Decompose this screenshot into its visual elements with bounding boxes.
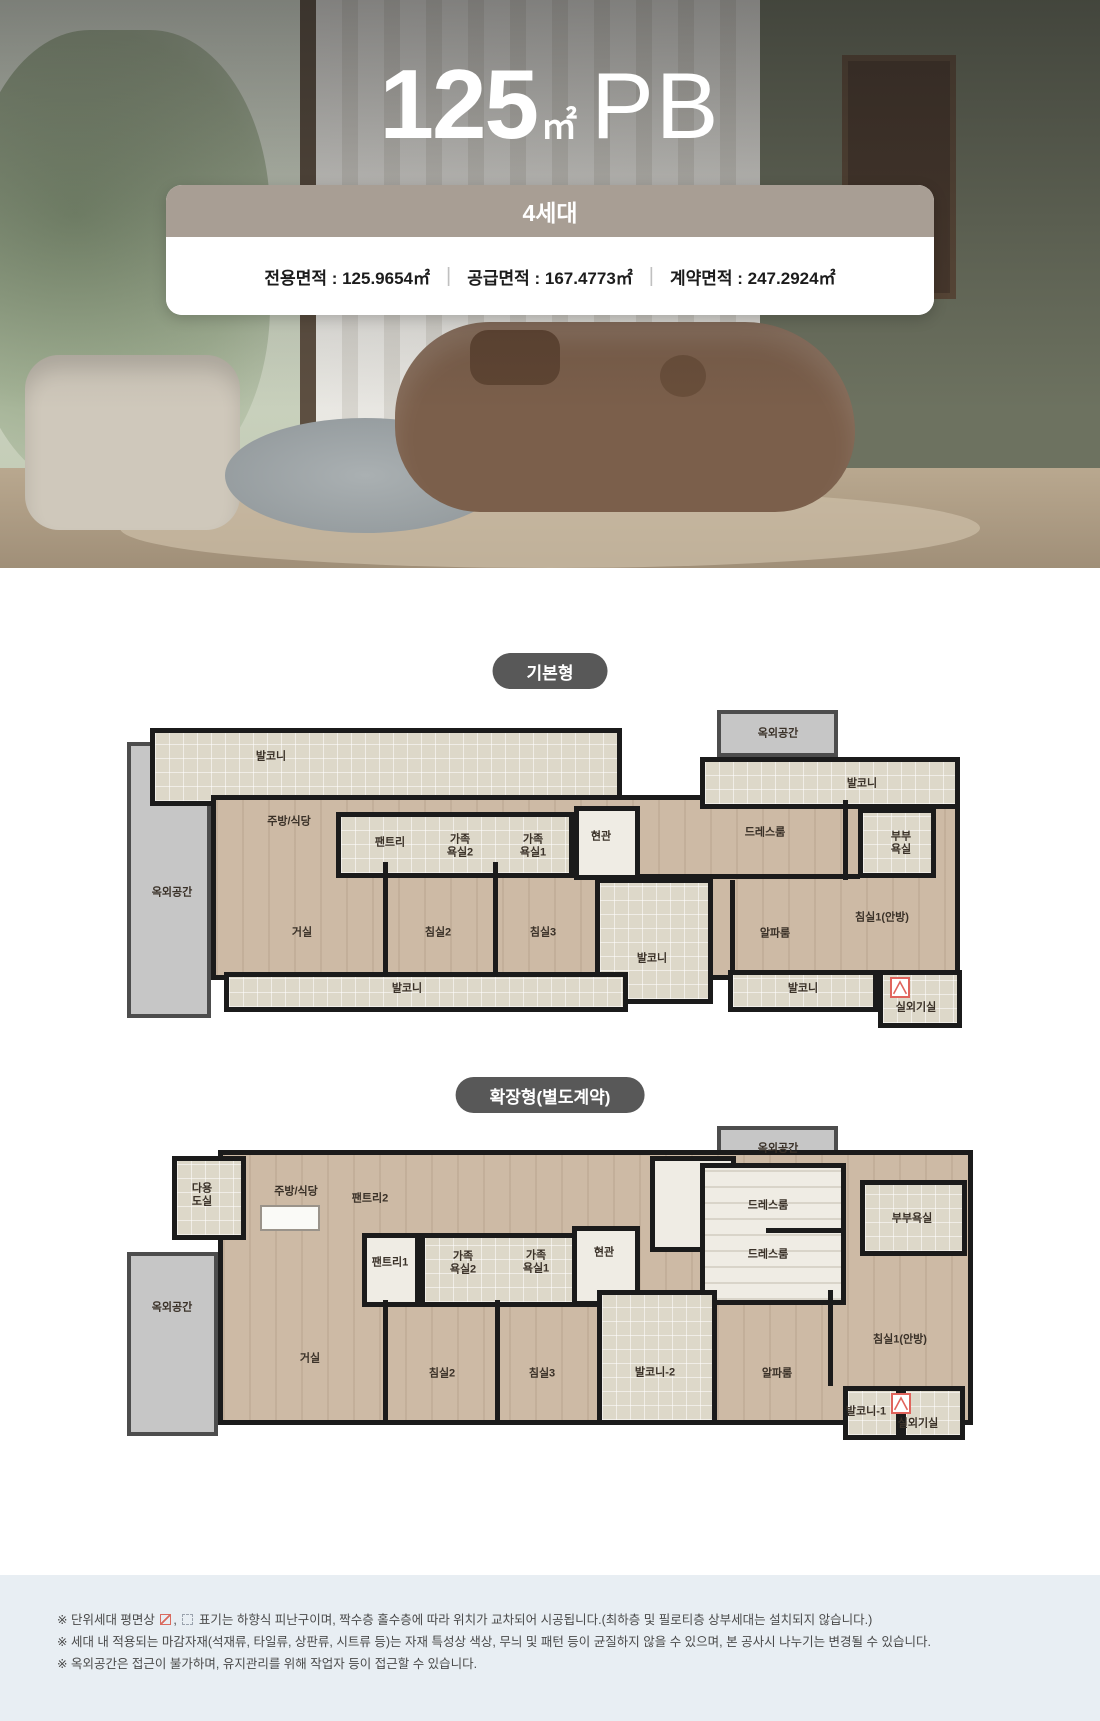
room-label: 발코니-2 bbox=[635, 1367, 675, 1380]
room-label: 가족 욕실1 bbox=[523, 1249, 549, 1274]
title-unit: ㎡ bbox=[541, 105, 577, 146]
room-label: 옥외공간 bbox=[758, 728, 798, 741]
plan2-master-bath-zone bbox=[860, 1180, 967, 1256]
plan1-balcony-bottomright-zone bbox=[728, 970, 878, 1012]
plan2-wall-alpha-master bbox=[828, 1290, 833, 1386]
plan1-balcony-bottom-zone bbox=[224, 972, 628, 1012]
escape-hatch-icon bbox=[890, 977, 910, 998]
plan2-outdoor-left-zone bbox=[127, 1252, 218, 1436]
area-exclusive: 전용면적 : 125.9654㎡ bbox=[264, 264, 430, 289]
room-label: 침실2 bbox=[429, 1368, 455, 1381]
page: 125㎡PB 4세대 전용면적 : 125.9654㎡ | 공급면적 : 167… bbox=[0, 0, 1100, 1721]
room-label: 드레스룸 bbox=[748, 1249, 788, 1262]
room-label: 다용 도실 bbox=[192, 1182, 212, 1207]
room-label: 옥외공간 bbox=[758, 1143, 798, 1156]
room-label: 발코니 bbox=[392, 983, 422, 996]
unit-info-card: 4세대 전용면적 : 125.9654㎡ | 공급면적 : 167.4773㎡ … bbox=[166, 185, 934, 315]
room-label: 팬트리1 bbox=[372, 1257, 408, 1270]
hero-photo: 125㎡PB 4세대 전용면적 : 125.9654㎡ | 공급면적 : 167… bbox=[0, 0, 1100, 568]
footnote-3: ※ 옥외공간은 접근이 불가하며, 유지관리를 위해 작업자 등이 접근할 수 … bbox=[57, 1653, 931, 1675]
plan-basic-pill: 기본형 bbox=[493, 653, 608, 689]
page-title: 125㎡PB bbox=[0, 48, 1100, 161]
room-label: 침실2 bbox=[425, 927, 451, 940]
plan2-wall-bedroom2-bedroom3 bbox=[495, 1300, 500, 1422]
area-info-row: 전용면적 : 125.9654㎡ | 공급면적 : 167.4773㎡ | 계약… bbox=[166, 237, 934, 315]
room-label: 발코니 bbox=[788, 983, 818, 996]
room-label: 알파룸 bbox=[762, 1368, 792, 1381]
kitchen-island bbox=[260, 1205, 320, 1231]
area-contract: 계약면적 : 247.2924㎡ bbox=[670, 264, 836, 289]
room-label: 옥외공간 bbox=[152, 1302, 192, 1315]
plan2-bathroom-strip-zone bbox=[420, 1233, 632, 1307]
area-supply: 공급면적 : 167.4773㎡ bbox=[467, 264, 633, 289]
room-label: 실외기실 bbox=[896, 1002, 936, 1015]
plan2-pantry2-zone bbox=[650, 1156, 736, 1252]
plan1-balcony-center-zone bbox=[595, 878, 713, 1004]
escape-hatch-icon bbox=[891, 1393, 911, 1414]
room-label: 알파룸 bbox=[760, 928, 790, 941]
room-label: 옥외공간 bbox=[152, 887, 192, 900]
plan1-balcony-top-zone bbox=[150, 728, 622, 806]
room-label: 가족 욕실2 bbox=[450, 1250, 476, 1275]
plan1-wall-dressroom-bottom bbox=[640, 874, 860, 879]
plan2-balcony2-zone bbox=[597, 1290, 717, 1425]
room-label: 현관 bbox=[591, 831, 611, 844]
room-label: 발코니-1 bbox=[846, 1406, 886, 1419]
plan1-wall-bedroom2-bedroom3 bbox=[493, 862, 498, 974]
footnote-1-prefix: ※ 단위세대 평면상 bbox=[57, 1613, 155, 1627]
room-label: 가족 욕실2 bbox=[447, 833, 473, 858]
room-label: 드레스룸 bbox=[745, 827, 785, 840]
footnote-1: ※ 단위세대 평면상 , 표기는 하향식 피난구이며, 짝수층 홀수층에 따라 … bbox=[57, 1609, 931, 1631]
footnote-1-comma: , bbox=[173, 1613, 176, 1627]
plan1-bathroom-strip-zone bbox=[336, 812, 574, 878]
plan2-wall-livingroom-bedroom2 bbox=[383, 1300, 388, 1422]
plan1-outdoor-left-zone bbox=[127, 742, 211, 1018]
footnote-2: ※ 세대 내 적용되는 마감자재(석재류, 타일류, 상판류, 시트류 등)는 … bbox=[57, 1631, 931, 1653]
plan1-outdoor-topright-zone bbox=[717, 710, 838, 757]
escape-hatch-solid-icon bbox=[160, 1614, 171, 1625]
room-label: 주방/식당 bbox=[274, 1186, 318, 1199]
area-separator: | bbox=[649, 265, 654, 288]
plan-extended-pill: 확장형(별도계약) bbox=[456, 1077, 645, 1113]
room-label: 현관 bbox=[594, 1247, 614, 1260]
plan2-main-body-zone bbox=[218, 1150, 973, 1425]
room-label: 거실 bbox=[300, 1353, 320, 1366]
room-label: 침실3 bbox=[530, 927, 556, 940]
plan1-wall-dress-bath bbox=[843, 800, 848, 880]
title-suffix: PB bbox=[591, 53, 720, 158]
footer: ※ 단위세대 평면상 , 표기는 하향식 피난구이며, 짝수층 홀수층에 따라 … bbox=[0, 1575, 1100, 1721]
room-label: 부부욕실 bbox=[892, 1213, 932, 1226]
room-label: 가족 욕실1 bbox=[520, 833, 546, 858]
footnotes: ※ 단위세대 평면상 , 표기는 하향식 피난구이며, 짝수층 홀수층에 따라 … bbox=[57, 1609, 931, 1675]
plan1-balcony-right-zone bbox=[700, 757, 960, 809]
plan2-outdoor-topright-zone bbox=[717, 1126, 838, 1172]
plan2-wall-dressroom-divider bbox=[766, 1228, 846, 1233]
plan1-master-bath-zone bbox=[858, 808, 936, 878]
escape-hatch-dotted-icon bbox=[182, 1614, 193, 1625]
plan2-utility-zone bbox=[172, 1156, 246, 1240]
room-label: 드레스룸 bbox=[748, 1200, 788, 1213]
plan2-pantry1-zone bbox=[362, 1233, 420, 1307]
room-label: 팬트리2 bbox=[352, 1193, 388, 1206]
area-separator: | bbox=[446, 265, 451, 288]
plan2-entry-zone bbox=[572, 1226, 640, 1306]
plan1-wall-livingroom-bedroom2 bbox=[383, 862, 388, 974]
room-label: 부부 욕실 bbox=[891, 830, 911, 855]
title-number: 125 bbox=[380, 49, 538, 159]
room-label: 발코니 bbox=[256, 751, 286, 764]
plan1-wall-alpha-master bbox=[730, 880, 735, 972]
plan1-main-body-zone bbox=[211, 795, 960, 980]
room-label: 침실1(안방) bbox=[873, 1334, 927, 1347]
room-label: 거실 bbox=[292, 927, 312, 940]
room-label: 침실1(안방) bbox=[855, 912, 909, 925]
plan2-ac-room-zone bbox=[901, 1386, 965, 1440]
room-label: 주방/식당 bbox=[267, 816, 311, 829]
plan1-entry-zone bbox=[574, 806, 640, 880]
household-badge: 4세대 bbox=[166, 185, 934, 237]
room-label: 실외기실 bbox=[898, 1418, 938, 1431]
plan2-balcony1-zone bbox=[843, 1386, 901, 1440]
plan2-dressroom-zone bbox=[700, 1163, 846, 1305]
room-label: 발코니 bbox=[637, 953, 667, 966]
room-label: 침실3 bbox=[529, 1368, 555, 1381]
footnote-1-suffix: 표기는 하향식 피난구이며, 짝수층 홀수층에 따라 위치가 교차되어 시공됩니… bbox=[199, 1613, 872, 1627]
room-label: 발코니 bbox=[847, 778, 877, 791]
plan1-ac-room-zone bbox=[878, 970, 962, 1028]
room-label: 팬트리 bbox=[375, 837, 405, 850]
